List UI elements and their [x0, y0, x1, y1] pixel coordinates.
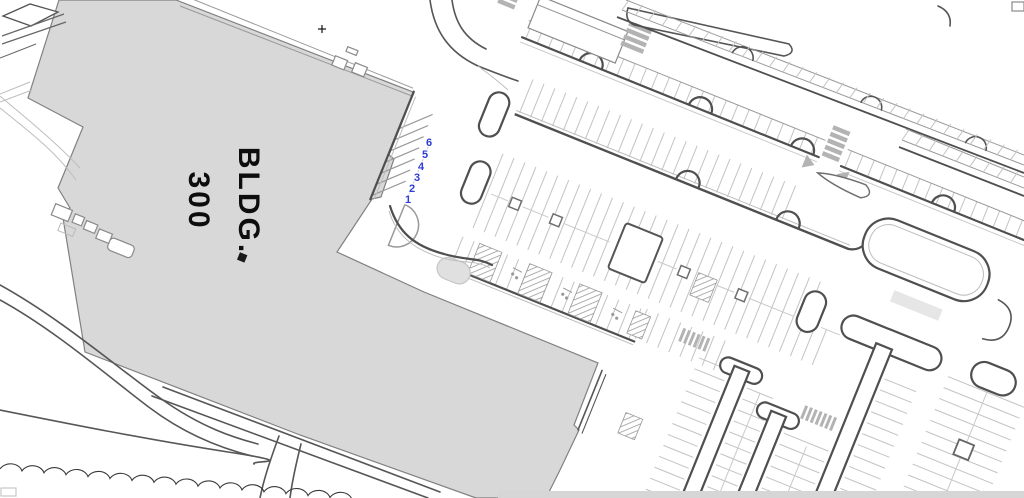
stall-line: [572, 232, 586, 267]
stall-line: [823, 78, 830, 88]
stall-line: [495, 201, 509, 236]
stall-line: [779, 316, 793, 351]
crosswalk-stripe: [826, 415, 831, 428]
stall-line: [561, 228, 575, 263]
stall-line: [876, 401, 908, 414]
stall-line: [640, 68, 646, 84]
stall-line: [617, 59, 623, 75]
stall-line: [871, 412, 903, 425]
stall-line: [552, 93, 565, 126]
crosswalk-stripe: [699, 336, 704, 349]
stall-line: [498, 158, 514, 197]
stall-line: [553, 180, 569, 219]
stall-line: [836, 83, 843, 93]
stall-line: [652, 73, 658, 89]
stall-line: [771, 181, 784, 214]
stall-line: [629, 64, 635, 80]
site-plan-viewport: 654321 BLDG. 300: [0, 0, 1024, 498]
stall-line: [884, 379, 916, 392]
stall-line: [766, 119, 772, 135]
cart-symbol: [615, 316, 619, 320]
stall-line: [596, 110, 609, 143]
stall-line: [659, 268, 673, 303]
stall-line: [659, 456, 689, 468]
stall-line: [916, 135, 923, 146]
stall-line: [854, 456, 886, 469]
stall-line: [858, 445, 890, 458]
island-pill: [476, 89, 513, 140]
stall-line: [845, 151, 851, 167]
stall-line: [672, 423, 702, 435]
stall-line: [551, 277, 563, 307]
stall-line: [541, 88, 554, 121]
median-nib-island: [815, 166, 872, 200]
planter-square: [549, 214, 562, 227]
stall-line: [530, 84, 543, 117]
stall-line: [695, 150, 708, 183]
stall-line: [690, 380, 720, 392]
stall-line: [575, 189, 591, 228]
stall-line: [662, 137, 675, 170]
stall-line: [890, 103, 897, 113]
stall-line: [856, 156, 862, 172]
site-plan-canvas: 654321: [0, 0, 1024, 498]
stall-line: [714, 290, 728, 325]
crosswalk-stripe: [822, 153, 839, 160]
stall-line: [772, 269, 788, 308]
stall-line: [640, 128, 653, 161]
stall-line: [982, 206, 988, 222]
crosswalk-stripe: [811, 410, 816, 423]
stall-line: [727, 163, 740, 196]
crosswalk-stripe: [689, 332, 694, 345]
t-island-head: [838, 312, 945, 374]
stall-line: [563, 97, 576, 130]
stall-line: [597, 198, 613, 237]
stall-line: [879, 165, 885, 181]
stall-line: [662, 224, 678, 263]
stall-line: [903, 109, 910, 119]
stall-line: [658, 318, 670, 348]
stall-line: [756, 52, 763, 62]
crosswalk-stripe: [825, 147, 842, 154]
stall-line: [783, 62, 790, 72]
stall-line: [673, 141, 686, 174]
crosswalk-stripe: [830, 417, 835, 430]
stall-line: [868, 160, 874, 176]
crosswalk-stripe: [680, 328, 685, 341]
stall-line: [850, 88, 857, 98]
planter-square: [953, 439, 974, 460]
stall-line: [943, 146, 950, 157]
stall-line: [929, 140, 936, 151]
upper-right-strip-2: [899, 129, 1024, 196]
stall-line: [902, 130, 909, 141]
stall-line: [542, 176, 558, 215]
stall-line: [913, 464, 989, 495]
building-name: BLDG.: [223, 147, 273, 255]
accessible-hatch: [627, 311, 651, 339]
stall-line: [769, 312, 783, 347]
cart-symbol: [511, 272, 515, 276]
stall-line: [697, 91, 703, 107]
stall-line: [743, 110, 749, 126]
stall-line: [796, 67, 803, 77]
stall-line: [891, 169, 897, 185]
stall-line: [520, 167, 536, 206]
stall-line: [739, 255, 755, 294]
stall-line: [668, 434, 698, 446]
stall-line: [681, 402, 711, 414]
stall-line: [939, 398, 1015, 429]
stall-line: [917, 453, 993, 484]
aisle-hatch: [690, 273, 718, 303]
crosswalk-stripe: [828, 140, 845, 147]
island-rect: [608, 223, 663, 283]
cart-symbol: [514, 276, 518, 280]
crosswalk-stripe: [684, 330, 689, 343]
cart-symbol: [561, 292, 565, 296]
tree-line: [0, 464, 352, 498]
bottom-left-structure: [1, 488, 16, 496]
parking-space-number: 1: [405, 194, 411, 206]
stall-line: [914, 179, 920, 195]
curb-hook: [983, 300, 1017, 346]
stall-line: [655, 467, 685, 479]
entry-canopy-arc: [388, 205, 425, 254]
stall-line: [997, 167, 1004, 178]
stall-line: [484, 197, 498, 232]
stall-line: [651, 133, 664, 166]
stall-line: [925, 183, 931, 199]
stall-line: [694, 369, 724, 381]
stall-line: [812, 330, 826, 365]
stall-line: [674, 82, 680, 98]
crosswalk-stripe: [806, 408, 811, 421]
stall-line: [845, 477, 877, 490]
crosswalk-stripe: [816, 412, 821, 425]
stall-line: [1010, 172, 1017, 183]
survey-cross-marker: [318, 25, 326, 33]
stall-line: [509, 162, 525, 201]
neighbor-structure: [3, 4, 58, 26]
stall-line: [618, 119, 631, 152]
stall-line: [867, 423, 899, 436]
stall-line: [684, 233, 700, 272]
building-label: BLDG. 300: [173, 147, 273, 255]
stall-line: [993, 211, 999, 227]
stall-line: [531, 171, 547, 210]
stall-line: [810, 72, 817, 82]
stall-line: [862, 434, 894, 447]
stall-line: [956, 151, 963, 162]
stall-line: [669, 323, 681, 353]
corner-structure: [1012, 2, 1024, 11]
stall-line: [769, 57, 776, 67]
cart-symbol: [611, 312, 615, 316]
planter-square: [677, 265, 690, 278]
crosswalk-stripe: [694, 334, 699, 347]
crosswalk-stripe: [802, 406, 807, 419]
stall-line: [728, 251, 744, 290]
stall-line: [736, 299, 750, 334]
stall-line: [686, 391, 716, 403]
stall-line: [783, 273, 799, 312]
stall-line: [574, 102, 587, 135]
crosswalk-stripe: [821, 414, 826, 427]
stall-line: [754, 114, 760, 130]
stall-line: [970, 156, 977, 167]
island-pill: [458, 158, 494, 207]
stall-line: [695, 238, 711, 277]
stall-line: [520, 79, 533, 112]
stall-line: [983, 162, 990, 173]
stall-line: [716, 159, 729, 192]
stall-line: [517, 210, 531, 245]
stall-line: [760, 177, 773, 210]
crosswalk-stripe: [830, 134, 847, 141]
stall-line: [673, 229, 689, 268]
bottom-road-band: [498, 491, 1024, 498]
stall-line: [902, 174, 908, 190]
stall-line: [761, 264, 777, 303]
parking-peninsulas: [562, 249, 945, 498]
parking-space-number: 6: [426, 137, 432, 149]
crosswalk-stripe: [498, 1, 515, 8]
stall-line: [663, 77, 669, 93]
stall-line: [564, 185, 580, 224]
stall-line: [959, 197, 965, 213]
stall-line: [586, 193, 602, 232]
stall-line: [583, 237, 597, 272]
stall-line: [585, 106, 598, 139]
stall-line: [550, 224, 564, 259]
stall-line: [1005, 215, 1011, 231]
stall-line: [607, 115, 620, 148]
parking-space-numbers: 654321: [405, 137, 432, 206]
crosswalk-stripe: [704, 338, 709, 351]
stall-line: [706, 242, 722, 281]
sidewalk-pad: [890, 290, 943, 321]
main-aisle-spine: [515, 102, 866, 254]
parking-space-number: 5: [422, 149, 428, 161]
stall-line: [750, 260, 766, 299]
island-pill: [967, 358, 1019, 399]
stall-line: [747, 303, 761, 338]
stall-line: [650, 478, 680, 490]
peninsula-hatch: [618, 413, 643, 440]
stall-line: [717, 246, 733, 285]
stall-line: [935, 409, 1011, 440]
stall-line: [800, 133, 806, 149]
stall-line: [528, 215, 542, 250]
stall-line: [849, 466, 881, 479]
crosswalk-stripe: [833, 127, 850, 134]
stall-line: [738, 168, 751, 201]
stall-line: [663, 445, 693, 457]
stall-line: [720, 100, 726, 116]
stall-line: [677, 413, 707, 425]
stall-line: [593, 241, 607, 276]
stall-line: [706, 155, 719, 188]
stall-line: [880, 390, 912, 403]
stall-line: [758, 308, 772, 343]
canopy-structure: [528, 0, 628, 63]
stall-line: [971, 202, 977, 218]
stall-line: [777, 123, 783, 139]
stall-line: [749, 172, 762, 205]
building-number: 300: [173, 147, 223, 255]
stall-line: [731, 105, 737, 121]
stall-line: [629, 124, 642, 157]
stall-line: [1016, 220, 1022, 236]
